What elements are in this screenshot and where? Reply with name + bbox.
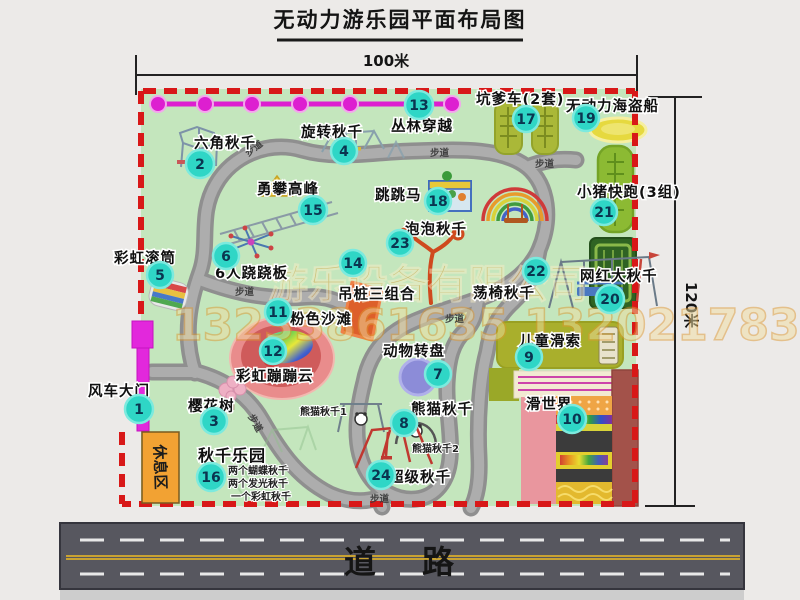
marker-22-swing-chair: 22 — [523, 258, 549, 284]
marker-5-rainbow-roller: 5 — [147, 262, 173, 288]
marker-15-climbing-peak: 15 — [299, 196, 327, 224]
marker-19-pirate-ship: 19 — [573, 105, 599, 131]
svg-text:22: 22 — [526, 264, 545, 280]
svg-text:24: 24 — [371, 468, 391, 484]
svg-text:17: 17 — [516, 112, 535, 128]
label-bubble-swing: 泡泡秋千 — [405, 220, 467, 238]
marker-20-big-swing: 20 — [596, 285, 624, 313]
walkway-label: 步道 — [445, 313, 465, 325]
svg-text:11: 11 — [268, 305, 287, 321]
marker-10-slide-world: 10 — [558, 405, 586, 433]
svg-text:21: 21 — [594, 205, 613, 221]
svg-text:18: 18 — [428, 194, 447, 210]
svg-text:20: 20 — [600, 292, 620, 308]
road: 道路 — [60, 523, 744, 589]
swing-paradise-item-2: 两个发光秋千 — [228, 477, 288, 490]
marker-16-swing-paradise: 16 — [197, 463, 225, 491]
label-rotating-swing: 旋转秋千 — [300, 123, 363, 141]
park-map-screenshot: 无动力游乐园平面布局图 100米 120米 — [0, 0, 800, 600]
svg-text:6: 6 — [221, 249, 231, 265]
svg-text:1: 1 — [134, 402, 144, 418]
park-map-canvas: 无动力游乐园平面布局图 100米 120米 — [0, 0, 800, 600]
swing-paradise-item-3: 一个彩虹秋千 — [231, 490, 291, 503]
marker-18-jumping-horse: 18 — [425, 188, 451, 214]
svg-text:14: 14 — [343, 256, 363, 272]
svg-text:8: 8 — [399, 416, 409, 432]
walkway-label: 步道 — [535, 158, 555, 170]
label-jumping-horse: 跳跳马 — [375, 186, 422, 204]
label-panda-swing: 熊猫秋千 — [411, 400, 473, 418]
label-super-swing: 超级秋千 — [388, 468, 451, 486]
svg-text:13: 13 — [409, 98, 428, 114]
marker-14-hanging-post-combo: 14 — [340, 250, 366, 276]
label-big-swing: 网红大秋千 — [580, 267, 658, 285]
label-hanging-post-combo: 吊桩三组合 — [338, 285, 416, 303]
marker-1-windmill-gate: 1 — [125, 395, 153, 423]
marker-11-pink-beach: 11 — [265, 299, 291, 325]
svg-text:9: 9 — [524, 350, 534, 366]
marker-23-bubble-swing: 23 — [387, 230, 413, 256]
marker-9-kids-zipline: 9 — [516, 344, 542, 370]
marker-13-jungle-crossing: 13 — [405, 91, 433, 119]
marker-24-super-swing: 24 — [367, 461, 395, 489]
svg-text:16: 16 — [201, 470, 220, 486]
panda-swing-2-label: 熊猫秋千2 — [412, 442, 459, 455]
svg-text:10: 10 — [562, 412, 582, 428]
label-rainbow-cloud: 彩虹蹦蹦云 — [235, 367, 314, 385]
svg-text:15: 15 — [303, 203, 322, 219]
svg-text:4: 4 — [339, 144, 349, 160]
label-pink-beach: 粉色沙滩 — [290, 310, 352, 328]
svg-text:2: 2 — [195, 157, 205, 173]
svg-text:19: 19 — [576, 111, 595, 127]
page-title: 无动力游乐园平面布局图 — [274, 8, 527, 32]
rest-area-box: 休息区 — [142, 432, 179, 503]
svg-text:5: 5 — [155, 268, 165, 284]
marker-3-cherry-tree: 3 — [201, 408, 227, 434]
width-dimension-label: 100米 — [363, 52, 410, 70]
walkway-label: 步道 — [235, 286, 255, 298]
walkway-label: 步道 — [370, 493, 390, 505]
walkway-label: 步道 — [430, 147, 450, 159]
marker-7-animal-turntable: 7 — [425, 361, 451, 387]
svg-text:23: 23 — [390, 236, 409, 252]
label-pit-car: 坑爹车(2套) — [476, 90, 564, 108]
rest-area-label: 休息区 — [150, 443, 170, 490]
marker-21-piggy-run: 21 — [591, 199, 617, 225]
label-piggy-run: 小猪快跑(3组) — [577, 183, 681, 201]
marker-4-rotating-swing: 4 — [331, 138, 357, 164]
panda-swing-1-label: 熊猫秋千1 — [300, 405, 347, 418]
label-swing-chair: 荡椅秋千 — [473, 284, 535, 302]
marker-17-pit-car: 17 — [513, 106, 539, 132]
svg-text:3: 3 — [209, 414, 219, 430]
marker-12-rainbow-cloud: 12 — [260, 338, 286, 364]
label-animal-turntable: 动物转盘 — [383, 342, 445, 360]
svg-text:7: 7 — [433, 367, 443, 383]
marker-6-seesaw: 6 — [213, 243, 239, 269]
road-label: 道路 — [344, 543, 500, 581]
marker-8-panda-swing: 8 — [391, 410, 417, 436]
svg-text:12: 12 — [263, 344, 282, 360]
swing-paradise-item-1: 两个蝴蝶秋千 — [228, 464, 288, 477]
marker-2-hexagon-swing: 2 — [186, 150, 214, 178]
road-lower-strip — [60, 589, 744, 600]
